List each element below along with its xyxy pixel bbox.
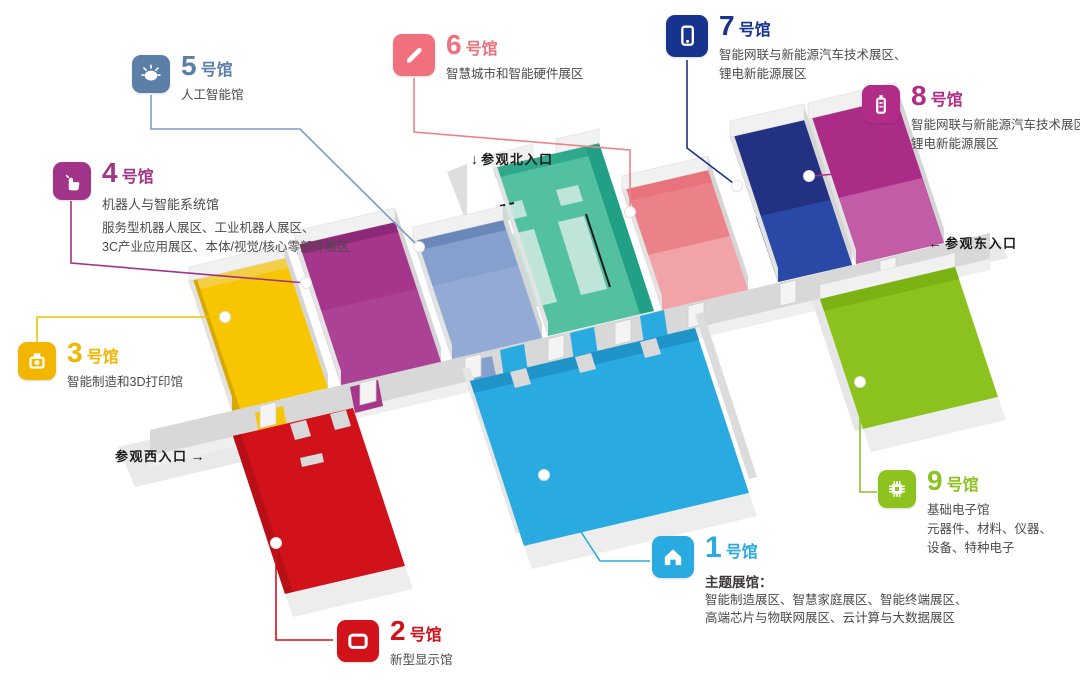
hall-9-label[interactable]: 9号馆 基础电子馆 元器件、材料、仪器、 设备、特种电子 bbox=[878, 470, 1052, 558]
hall-desc: 人工智能馆 bbox=[181, 86, 244, 105]
hall-7-label[interactable]: 7号馆 智能网联与新能源汽车技术展区、 锂电新能源展区 bbox=[666, 15, 907, 84]
battery-icon bbox=[862, 85, 900, 123]
hall-desc: 设备、特种电子 bbox=[927, 539, 1052, 558]
hall-number: 7 bbox=[719, 10, 736, 41]
exhibition-floor-plan: 5号馆 人工智能馆 6号馆 智慧城市和智能硬件展区 7号馆 智能网联与新能源汽车… bbox=[0, 0, 1080, 696]
hall-number: 6 bbox=[446, 29, 463, 60]
hall-5-label[interactable]: 5号馆 人工智能馆 bbox=[132, 55, 244, 105]
home-icon bbox=[652, 536, 694, 578]
hand-pointer-icon bbox=[53, 162, 91, 200]
hall-number: 5 bbox=[181, 50, 198, 81]
hall-3-marker bbox=[220, 312, 231, 323]
hall-subtitle: 主题展馆： bbox=[705, 571, 968, 591]
hall-1-marker bbox=[539, 470, 550, 481]
hall-desc: 智能网联与新能源汽车技术展区 bbox=[911, 116, 1080, 135]
hall-title: 8号馆 bbox=[911, 81, 1080, 110]
display-icon bbox=[337, 620, 379, 662]
hall-desc: 服务型机器人展区、工业机器人展区、 bbox=[102, 219, 350, 238]
west-entrance-label: 参观西入口→ bbox=[115, 446, 208, 465]
hall-6-marker bbox=[625, 207, 636, 218]
corridor-pillar bbox=[615, 319, 631, 345]
corridor-pillar bbox=[548, 335, 564, 361]
left-arrow-icon: ← bbox=[928, 235, 942, 251]
hall-number: 8 bbox=[911, 80, 928, 111]
hall-desc: 智能制造展区、智慧家庭展区、智能终端展区、 bbox=[705, 591, 968, 610]
hall-number: 3 bbox=[67, 337, 84, 368]
hall-desc: 元器件、材料、仪器、 bbox=[927, 520, 1052, 539]
hall-title: 5号馆 bbox=[181, 51, 244, 80]
hall-name: 机器人与智能系统馆 bbox=[102, 194, 350, 213]
hall-desc: 新型显示馆 bbox=[390, 651, 453, 670]
hall-desc: 智慧城市和智能硬件展区 bbox=[446, 65, 584, 84]
hall-number: 2 bbox=[390, 615, 407, 646]
hall-5-marker bbox=[414, 242, 425, 253]
hall-desc: 锂电新能源展区 bbox=[719, 65, 907, 84]
hall-7-marker bbox=[732, 181, 743, 192]
hall-4-label[interactable]: 4号馆 机器人与智能系统馆 服务型机器人展区、工业机器人展区、 3C产业应用展区… bbox=[53, 162, 350, 257]
hall-8-label[interactable]: 8号馆 智能网联与新能源汽车技术展区 锂电新能源展区 bbox=[862, 85, 1080, 154]
hall-2-map bbox=[233, 408, 413, 617]
corridor-pillar bbox=[260, 402, 276, 428]
hall-desc: 3C产业应用展区、本体/视觉/核心零部件展区 bbox=[102, 238, 350, 257]
corridor-pillar bbox=[360, 379, 376, 405]
hall-desc: 智能网联与新能源汽车技术展区、 bbox=[719, 46, 907, 65]
hall-2-marker bbox=[271, 538, 282, 549]
hall-title: 4号馆 bbox=[102, 158, 350, 187]
hall-title: 6号馆 bbox=[446, 30, 584, 59]
chip-icon bbox=[878, 470, 916, 508]
hall-title: 3号馆 bbox=[67, 338, 183, 367]
north-entrance-label: ↓参观北入口 bbox=[468, 149, 554, 168]
hall-desc: 高端芯片与物联网展区、云计算与大数据展区 bbox=[705, 609, 968, 628]
right-arrow-icon: → bbox=[191, 448, 205, 464]
brain-icon bbox=[132, 55, 170, 93]
hall-2-label[interactable]: 2号馆 新型显示馆 bbox=[337, 620, 453, 670]
pen-icon bbox=[393, 34, 435, 76]
down-arrow-icon: ↓ bbox=[471, 151, 478, 167]
hall-desc: 智能制造和3D打印馆 bbox=[67, 373, 183, 392]
hall-6-label[interactable]: 6号馆 智慧城市和智能硬件展区 bbox=[393, 34, 584, 84]
phone-icon bbox=[666, 15, 708, 57]
hall-title: 9号馆 bbox=[927, 466, 1052, 495]
corridor-pillar bbox=[780, 280, 796, 306]
hall-title: 7号馆 bbox=[719, 11, 907, 40]
hall-4-marker bbox=[301, 278, 312, 289]
hall-title: 2号馆 bbox=[390, 616, 453, 645]
hall-8-marker bbox=[804, 171, 815, 182]
hall-number: 4 bbox=[102, 157, 119, 188]
hall-number: 9 bbox=[927, 465, 944, 496]
east-entrance-label: ←参观东入口 bbox=[925, 233, 1018, 252]
hall-desc: 基础电子馆 bbox=[927, 501, 1052, 520]
hall-9-marker bbox=[855, 377, 866, 388]
printer-3d-icon bbox=[18, 342, 56, 380]
hall-number: 1 bbox=[705, 531, 723, 564]
hall-desc: 锂电新能源展区 bbox=[911, 135, 1080, 154]
hall-3-label[interactable]: 3号馆 智能制造和3D打印馆 bbox=[18, 342, 183, 392]
